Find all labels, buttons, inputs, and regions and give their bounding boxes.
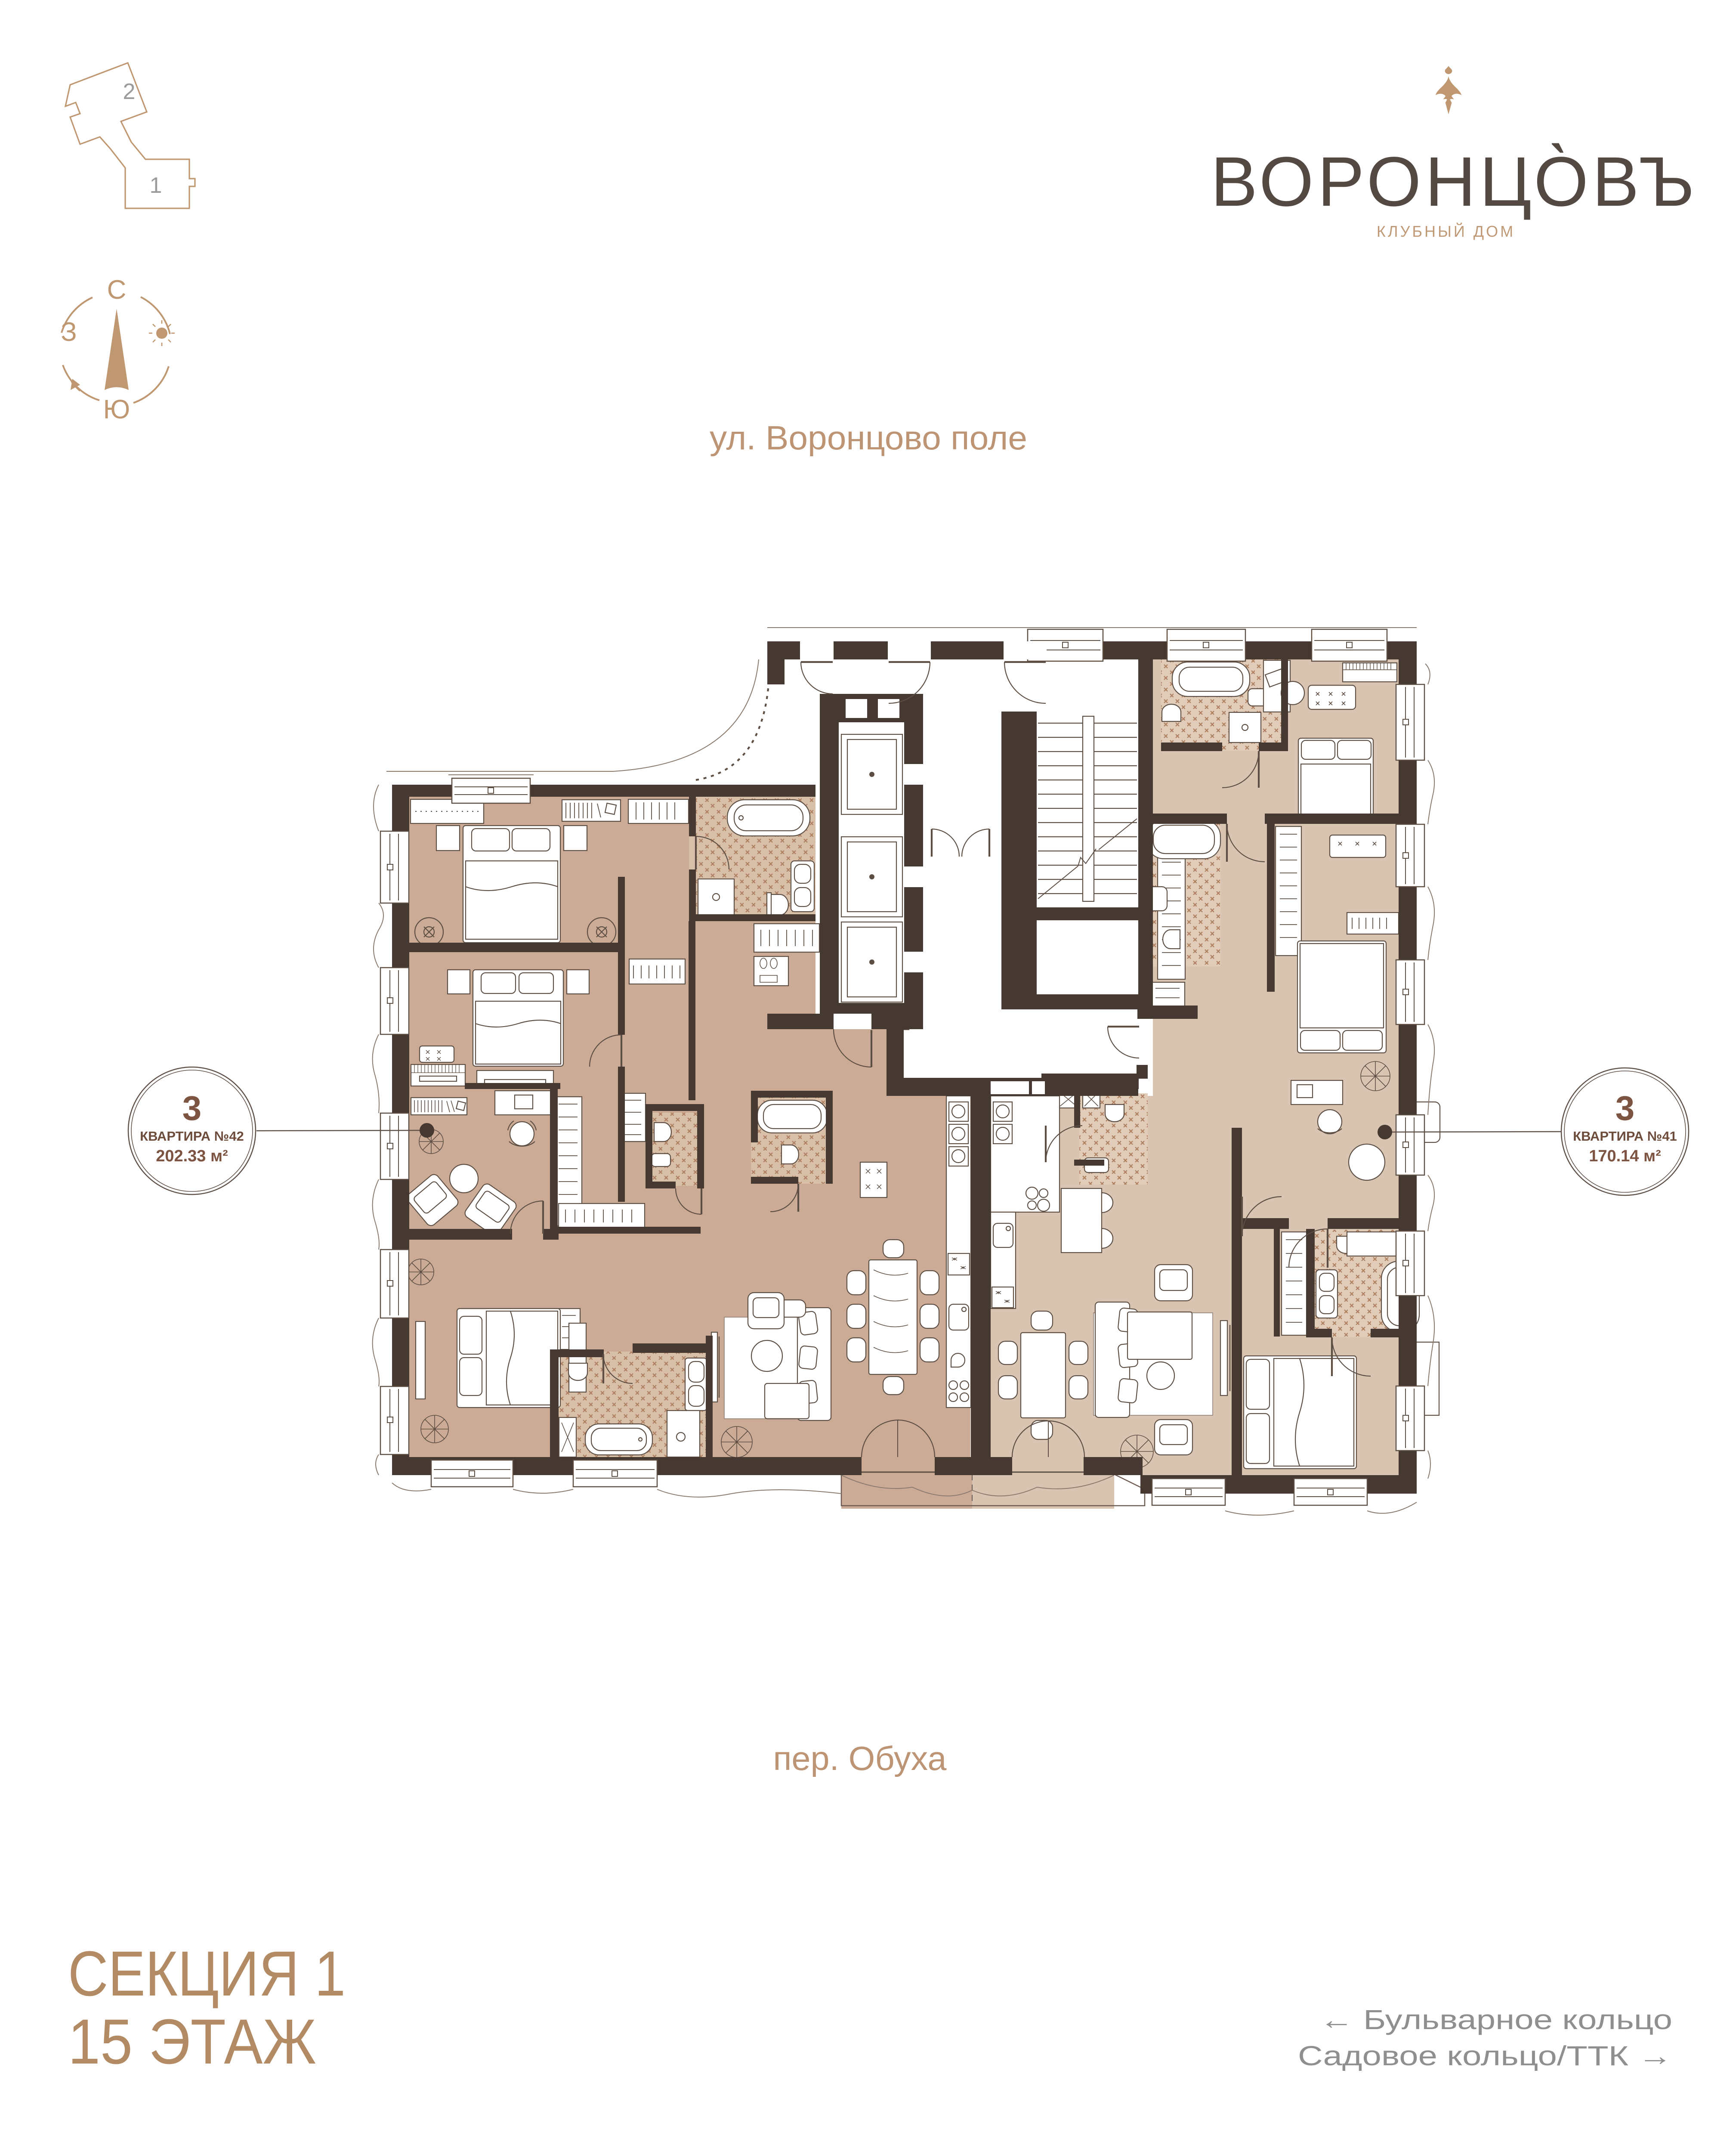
svg-text:СЕКЦИЯ 1: СЕКЦИЯ 1: [68, 1938, 346, 2009]
svg-text:← Бульварное кольцо: ← Бульварное кольцо: [1319, 2004, 1672, 2035]
svg-text:3: 3: [182, 1089, 202, 1127]
svg-text:1: 1: [150, 173, 162, 198]
svg-text:С: С: [107, 275, 127, 305]
svg-text:ВОРОНЦО̀ВЪ: ВОРОНЦО̀ВЪ: [1211, 142, 1698, 221]
svg-text:КЛУБНЫЙ ДОМ: КЛУБНЫЙ ДОМ: [1377, 222, 1515, 240]
svg-text:Ю: Ю: [103, 395, 130, 424]
svg-text:Садовое кольцо/ТТК →: Садовое кольцо/ТТК →: [1298, 2040, 1672, 2071]
svg-text:З: З: [61, 317, 77, 347]
svg-text:КВАРТИРА №42: КВАРТИРА №42: [140, 1129, 244, 1144]
svg-text:пер. Обуха: пер. Обуха: [773, 1739, 947, 1777]
svg-text:202.33 м²: 202.33 м²: [156, 1147, 228, 1165]
svg-text:ул. Воронцово поле: ул. Воронцово поле: [710, 419, 1027, 457]
svg-text:15 ЭТАЖ: 15 ЭТАЖ: [68, 2006, 316, 2077]
svg-text:3: 3: [1616, 1089, 1635, 1127]
svg-text:170.14 м²: 170.14 м²: [1589, 1147, 1661, 1165]
svg-text:2: 2: [123, 79, 136, 104]
svg-text:КВАРТИРА №41: КВАРТИРА №41: [1573, 1129, 1677, 1144]
